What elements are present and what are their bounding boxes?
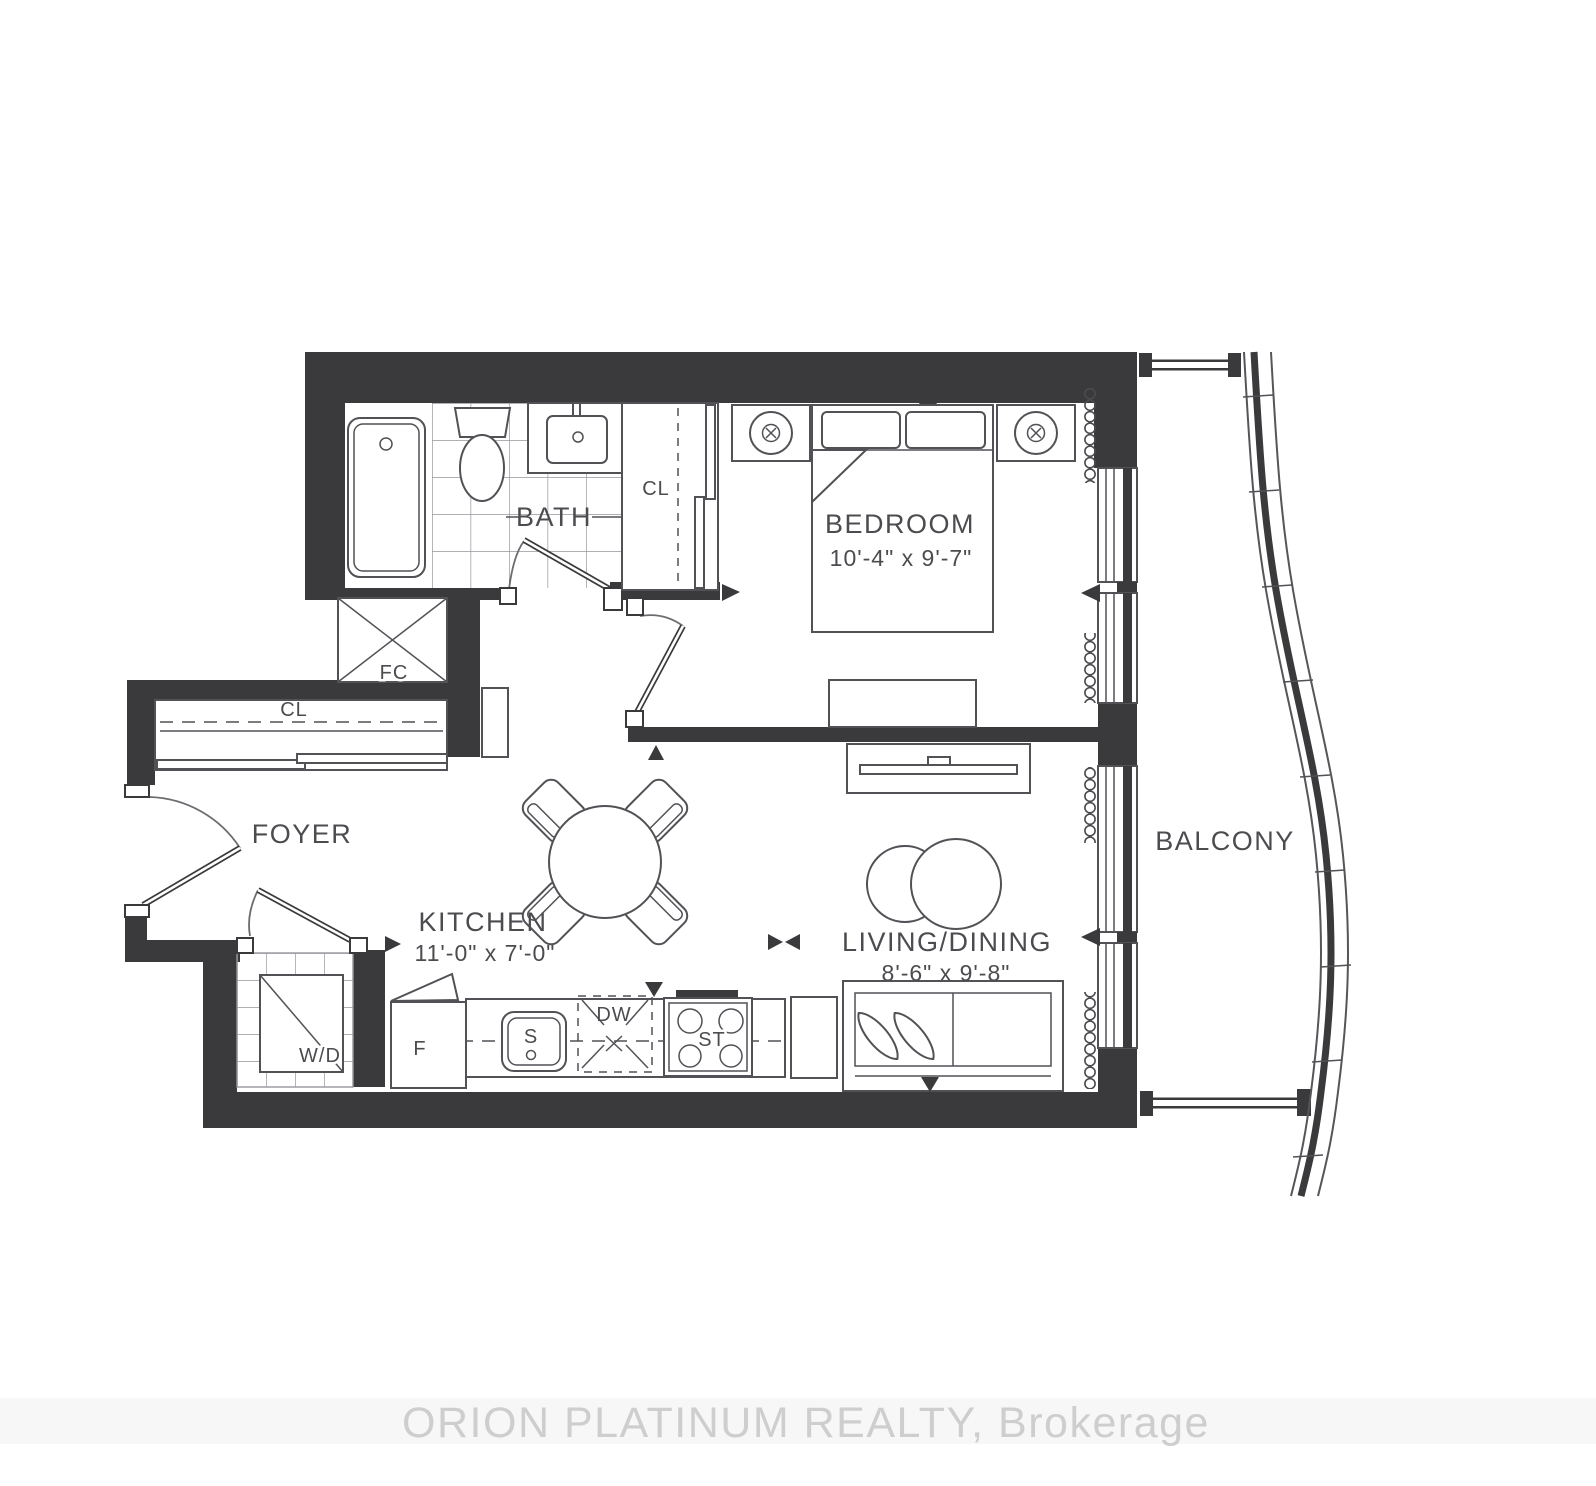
sofa — [843, 981, 1063, 1092]
dresser — [829, 680, 976, 727]
tv-console — [847, 744, 1030, 793]
bedroom-closet-label: CL — [642, 478, 670, 500]
front-closet-label: FC — [380, 662, 409, 684]
wall-bottom — [203, 1092, 1137, 1128]
nightstand-right — [997, 405, 1075, 461]
window-bedroom-1 — [1098, 468, 1137, 582]
kitchen-label: KITCHEN — [418, 907, 547, 937]
bowtie-right-icon — [785, 934, 800, 950]
wall-top — [305, 352, 1137, 403]
fridge: F — [391, 974, 466, 1088]
wall-entry-left-lower — [125, 917, 147, 962]
stove-label: ST — [698, 1029, 726, 1051]
balcony-curved-wall — [1243, 352, 1351, 1196]
wall-right-lower — [1098, 1048, 1137, 1126]
kitchen: F S DW ST — [391, 776, 790, 1088]
bedroom-closet: CL — [622, 403, 718, 590]
floor-plan-page: BALCONY BATH — [0, 0, 1596, 1486]
wall-laundry-left — [203, 940, 237, 1097]
bath-sink-vanity — [528, 403, 628, 473]
bath-label: BATH — [516, 502, 592, 532]
arrow-dishwasher-icon — [645, 982, 663, 997]
living-dining: LIVING/DINING 8'-6" x 9'-8" — [791, 839, 1063, 1092]
side-table — [791, 997, 837, 1078]
living-dining-label: LIVING/DINING — [842, 927, 1052, 957]
pouf-right — [911, 839, 1001, 929]
bedroom-label: BEDROOM — [825, 509, 975, 539]
window-mid-post — [1117, 582, 1137, 593]
front-closet: FC — [338, 598, 447, 684]
wall-right-mid — [1098, 703, 1137, 766]
bath-room: BATH — [348, 403, 634, 610]
entry-door — [125, 785, 240, 917]
laundry-closet: W/D — [237, 890, 367, 1087]
arrow-bedroom-door-icon — [648, 745, 664, 760]
living-dining-dims: 8'-6" x 9'-8" — [882, 960, 1011, 986]
kitchen-dims: 11'-0" x 7'-0" — [415, 940, 556, 966]
window-living-1 — [1098, 766, 1137, 932]
balcony: BALCONY — [1139, 352, 1351, 1196]
foyer-closet-label: CL — [280, 699, 308, 721]
fridge-label: F — [413, 1038, 426, 1060]
wall-laundry-right — [353, 950, 385, 1087]
wall-right-upper — [1094, 352, 1137, 468]
wall-entry-left-upper — [127, 680, 155, 785]
arrow-living-window-icon — [1081, 928, 1100, 946]
balcony-rail-top — [1139, 353, 1241, 377]
window-bedroom-2 — [1098, 593, 1137, 703]
foyer-label: FOYER — [252, 819, 353, 849]
wall-fc-right — [447, 598, 480, 757]
wall-bath-left — [305, 352, 345, 600]
laundry-label: W/D — [299, 1045, 341, 1067]
partition-duct — [482, 688, 508, 757]
bedroom-dims: 10'-4" x 9'-7" — [830, 545, 973, 571]
arrow-bedroom-window-icon — [1081, 584, 1100, 602]
watermark-text: ORION PLATINUM REALTY, Brokerage — [402, 1399, 1210, 1447]
balcony-label: BALCONY — [1155, 826, 1295, 856]
dishwasher-label: DW — [596, 1004, 631, 1026]
stove: ST — [664, 990, 752, 1076]
window-mid-post-2 — [1117, 932, 1137, 943]
bedroom-door — [626, 598, 683, 727]
balcony-rail-bottom — [1140, 1089, 1311, 1116]
arrow-kitchen-entry-icon — [385, 936, 401, 952]
curve-ticks — [1243, 395, 1351, 1157]
dining-table — [549, 806, 661, 918]
bathtub — [348, 418, 425, 577]
foyer-closet: CL — [155, 699, 447, 770]
sink-label: S — [524, 1026, 538, 1048]
nightstand-left — [732, 405, 810, 461]
wall-bedroom-south — [628, 727, 1098, 742]
floor-plan-drawing: BALCONY BATH — [0, 0, 1596, 1486]
kitchen-sink: S — [502, 1012, 566, 1071]
watermark: ORION PLATINUM REALTY, Brokerage — [0, 1398, 1596, 1447]
bowtie-left-icon — [768, 934, 783, 950]
laundry-door — [237, 890, 367, 953]
arrow-bedroom-wall-icon — [722, 584, 740, 601]
window-living-2 — [1098, 943, 1137, 1048]
